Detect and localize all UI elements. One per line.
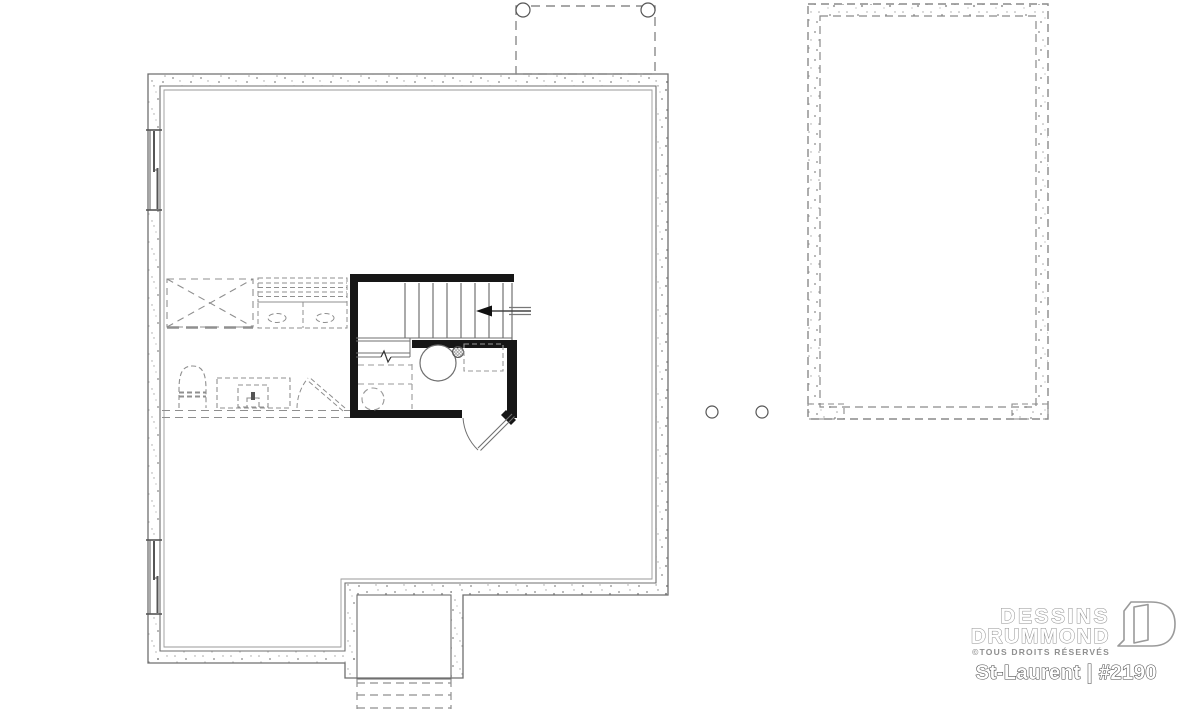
floorplan-drawing: DESSINS DRUMMOND ©TOUS DROITS RÉSERVÉS S… bbox=[0, 0, 1200, 711]
foundation-inner-line bbox=[160, 86, 656, 651]
future-wall-dashed bbox=[162, 411, 350, 418]
floor-drain-icon bbox=[453, 347, 464, 358]
floorplan-canvas: DESSINS DRUMMOND ©TOUS DROITS RÉSERVÉS S… bbox=[0, 0, 1200, 711]
exterior-steps bbox=[357, 679, 451, 709]
open-door-d-icon bbox=[1118, 602, 1175, 646]
mechanical-area bbox=[162, 278, 350, 418]
future-door-dashed bbox=[297, 377, 345, 411]
porch-post-left bbox=[516, 3, 530, 17]
plan-title: St-Laurent | #2190 bbox=[976, 662, 1157, 684]
furnace-burner-mark bbox=[251, 392, 255, 400]
plumbing-rough-in-circle bbox=[420, 345, 456, 381]
foundation-walls bbox=[148, 74, 668, 678]
water-heater-icon bbox=[179, 366, 206, 408]
garage-outer-line bbox=[808, 4, 1048, 419]
future-toilet bbox=[362, 388, 384, 410]
future-counter bbox=[258, 278, 347, 328]
future-vanity bbox=[464, 344, 503, 371]
bathroom-door bbox=[463, 414, 515, 451]
future-storage-xbox bbox=[167, 279, 253, 328]
brand-block: DESSINS DRUMMOND ©TOUS DROITS RÉSERVÉS S… bbox=[971, 602, 1175, 684]
door-swing-arc bbox=[463, 418, 478, 450]
deck-post-footings bbox=[706, 406, 768, 418]
porch-post-right bbox=[641, 3, 655, 17]
garage-inner-line bbox=[820, 16, 1036, 407]
front-porch-footprint bbox=[516, 3, 655, 74]
interior-finish-line bbox=[164, 90, 652, 647]
future-door-swing-arc bbox=[297, 378, 308, 408]
cold-room-bump-out bbox=[357, 595, 451, 709]
future-partition-dashed bbox=[358, 364, 412, 410]
detached-garage-foundation bbox=[808, 4, 1048, 419]
brand-rights: ©TOUS DROITS RÉSERVÉS bbox=[972, 647, 1110, 657]
brand-line2: DRUMMOND bbox=[971, 625, 1110, 648]
furnace-icon bbox=[217, 378, 290, 408]
